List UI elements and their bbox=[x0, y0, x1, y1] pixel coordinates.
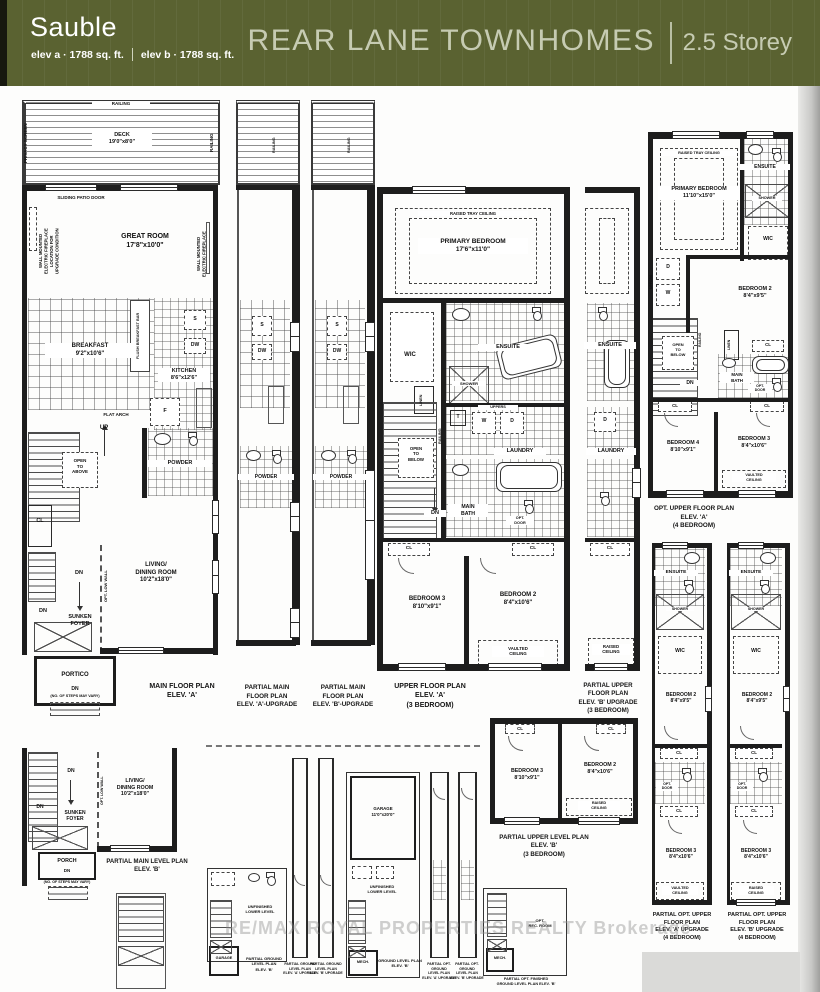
open-to-above-label: OPEN TO ABOVE bbox=[63, 458, 97, 475]
powder-label: POWDER bbox=[238, 474, 294, 480]
strip4b-caption: PARTIAL OPT. UPPER FLOOR PLAN ELEV. 'B' … bbox=[723, 912, 791, 942]
railing-label: RAILING bbox=[92, 101, 150, 107]
closet-label: CL bbox=[660, 750, 698, 756]
porch bbox=[38, 852, 96, 880]
deck bbox=[311, 100, 375, 185]
fixture-box bbox=[376, 866, 394, 879]
dn-arrow bbox=[434, 488, 435, 508]
primary-bedroom-label: PRIMARY BEDROOM 11'10"x15'0" bbox=[658, 186, 740, 200]
fixture-box bbox=[352, 866, 372, 879]
dn-label: DN bbox=[60, 768, 82, 774]
window bbox=[746, 131, 774, 139]
closet bbox=[28, 505, 52, 547]
ensuite-label: ENSUITE bbox=[478, 344, 538, 351]
tray-label: RAISED TRAY CEILING bbox=[661, 151, 737, 156]
fixture-box bbox=[211, 872, 235, 886]
door-arc bbox=[480, 558, 496, 574]
portico-dn-label: DN bbox=[64, 686, 86, 692]
wall bbox=[634, 187, 640, 671]
door-arc bbox=[664, 413, 678, 427]
watermark: RE/MAX ROYAL PROPERTIES REALTY Brokerage bbox=[225, 918, 605, 939]
sink-icon bbox=[722, 358, 736, 368]
wall bbox=[22, 748, 27, 886]
dishwasher-label: DW bbox=[327, 348, 347, 354]
wall-fireplace-label: WALL MOUNTED ELECTRIC FIREPLACE bbox=[196, 210, 207, 298]
wic-box bbox=[733, 636, 779, 674]
wall bbox=[652, 900, 712, 905]
sink-icon bbox=[760, 552, 776, 564]
sliding-door bbox=[45, 184, 97, 191]
open-to-below-label: OPEN TO BELOW bbox=[663, 342, 693, 357]
great-room-label: GREAT ROOM 17'8"x10'0" bbox=[90, 233, 200, 251]
closet-label: CL bbox=[735, 750, 773, 756]
ground3-caption: PARTIAL OPT. FINISHED GROUND LEVEL PLAN … bbox=[488, 977, 564, 987]
uppers-label: UPPERS bbox=[649, 260, 654, 304]
dn-label: DN bbox=[680, 380, 700, 386]
main-bath-label: MAIN BATH bbox=[720, 372, 754, 383]
toilet-icon bbox=[760, 580, 769, 593]
opt-door-label: OPT. DOOR bbox=[748, 384, 772, 393]
window bbox=[212, 500, 219, 534]
ensuite-label: ENSUITE bbox=[584, 342, 636, 349]
sink-label: S bbox=[252, 322, 272, 328]
portico-label: PORTICO bbox=[44, 672, 106, 680]
upperlvl-b-caption: PARTIAL UPPER LEVEL PLAN ELEV. 'B' (3 BE… bbox=[494, 834, 594, 859]
dryer-label: D bbox=[500, 418, 524, 424]
fridge-label: F bbox=[150, 408, 180, 415]
sliding-patio-door-label: SLIDING PATIO DOOR bbox=[38, 195, 124, 201]
wall bbox=[652, 398, 792, 402]
window bbox=[488, 663, 542, 671]
wall bbox=[740, 139, 744, 261]
uppers-label: UPPERS bbox=[478, 405, 518, 410]
counter bbox=[196, 388, 212, 428]
ensuite-label: ENSUITE bbox=[654, 570, 698, 576]
wic-label: WIC bbox=[390, 352, 430, 360]
dn-arrow bbox=[70, 780, 71, 800]
powder-label: POWDER bbox=[313, 474, 369, 480]
bathtub-icon bbox=[496, 462, 562, 492]
door-arc bbox=[756, 413, 770, 427]
upper-b-caption: PARTIAL UPPER FLOOR PLAN ELEV. 'B' UPGRA… bbox=[572, 682, 644, 715]
wall bbox=[714, 412, 718, 492]
bedroom2-label: BEDROOM 2 8'4"x10'6" bbox=[478, 592, 558, 607]
bedroom3-label: BEDROOM 3 8'4"x10'6" bbox=[727, 848, 785, 861]
sink-label: S bbox=[327, 322, 347, 328]
window bbox=[365, 322, 375, 352]
wall bbox=[236, 640, 296, 646]
door-arc bbox=[398, 558, 414, 574]
window bbox=[632, 468, 641, 498]
shower-label: SHOWER bbox=[742, 607, 770, 611]
toilet-icon bbox=[600, 492, 609, 505]
bedroom4-label: BEDROOM 4 8'10"x9'1" bbox=[654, 440, 712, 453]
shower-icon bbox=[731, 594, 781, 630]
bath-floor bbox=[587, 459, 634, 537]
wall bbox=[292, 185, 300, 645]
laundry-label: LAUNDRY bbox=[586, 448, 636, 455]
sink-icon bbox=[748, 144, 763, 155]
vaulted-label: VAULTED CEILING bbox=[492, 646, 544, 657]
privacy-screen-label: PRIVACY SCREEN bbox=[23, 112, 29, 174]
washer-label: W bbox=[656, 290, 680, 296]
porch-label: PORCH bbox=[44, 858, 90, 865]
dishwasher-label: DW bbox=[252, 348, 272, 354]
wall bbox=[311, 640, 371, 646]
closet-label: CL bbox=[590, 546, 630, 552]
dn-label-2: DN bbox=[30, 804, 50, 810]
opt-door-label: OPT. DOOR bbox=[506, 516, 534, 525]
main-b-caption: PARTIAL MAIN LEVEL PLAN ELEV. 'B' bbox=[104, 858, 190, 874]
dn-label: DN bbox=[424, 510, 446, 517]
entry-steps bbox=[50, 702, 100, 716]
wall bbox=[655, 744, 707, 748]
flush-breakfast-bar-label: FLUSH BREAKFAST BAR bbox=[136, 304, 141, 368]
door-arc bbox=[664, 726, 678, 740]
railing-label: RAILING bbox=[347, 122, 352, 168]
steps-note: (NO. OF STEPS MAY VARY) bbox=[28, 694, 122, 699]
scan-margin-bottom bbox=[642, 952, 800, 992]
wall bbox=[730, 744, 782, 748]
wall bbox=[236, 185, 300, 190]
opt4a-caption: OPT. UPPER FLOOR PLAN ELEV. 'A' (4 BEDRO… bbox=[644, 505, 744, 531]
fireplace-upgrade-icon bbox=[29, 207, 37, 251]
opt-low-wall-label: OPT. LOW WALL bbox=[103, 555, 108, 617]
wall bbox=[558, 722, 562, 820]
closet-label: CL bbox=[505, 726, 535, 732]
window bbox=[118, 647, 164, 654]
closet-label: CL bbox=[28, 518, 52, 525]
shower-icon bbox=[656, 594, 704, 630]
bedroom2-label: BEDROOM 2 8'4"x9'5" bbox=[654, 692, 708, 705]
toilet-icon bbox=[682, 768, 691, 781]
kitchen-label: KITCHEN 8'6"x12'6" bbox=[158, 368, 210, 382]
window bbox=[290, 608, 300, 638]
model-name: Sauble bbox=[30, 12, 117, 43]
storey-label: 2.5 Storey bbox=[683, 29, 792, 57]
up-label: UP bbox=[92, 425, 116, 433]
door-arc bbox=[743, 820, 757, 834]
washer-label: W bbox=[472, 418, 496, 424]
vaulted-label: VAULTED CEILING bbox=[732, 473, 776, 482]
up-arrow bbox=[104, 430, 105, 456]
window bbox=[578, 817, 620, 825]
steps bbox=[210, 940, 232, 954]
mech-label: MECH. bbox=[487, 956, 513, 961]
sunken-foyer-label: SUNKEN FOYER bbox=[56, 614, 104, 628]
opt-door-label: OPT. DOOR bbox=[656, 782, 678, 791]
dryer-label: D bbox=[594, 417, 616, 423]
opt-low-wall-line bbox=[100, 545, 102, 653]
closet-label-2: CL bbox=[596, 726, 626, 732]
counter bbox=[268, 386, 284, 424]
wall bbox=[22, 185, 27, 655]
cut-line bbox=[312, 190, 314, 645]
sunken-foyer-label: SUNKEN FOYER bbox=[54, 810, 96, 823]
ogstrip-b-caption: PARTIAL OPT. GROUND LEVEL PLAN ELEV. 'B'… bbox=[448, 962, 486, 981]
primary-bedroom-label: PRIMARY BEDROOM 17'6"x11'0" bbox=[418, 238, 528, 254]
window bbox=[290, 322, 300, 352]
door-arc bbox=[508, 736, 523, 751]
closet-label-2: CL bbox=[660, 808, 698, 814]
window bbox=[504, 817, 540, 825]
ceiling-label: VAULTED CEILING bbox=[662, 886, 698, 895]
window bbox=[110, 845, 150, 852]
wall bbox=[490, 718, 495, 824]
open-to-below-label: OPEN TO BELOW bbox=[399, 446, 433, 462]
window bbox=[736, 899, 776, 906]
counter bbox=[343, 386, 359, 424]
entry-steps bbox=[48, 886, 88, 900]
sink-icon bbox=[248, 873, 260, 882]
strip-b-caption: PARTIAL MAIN FLOOR PLAN ELEV. 'B'-UPGRAD… bbox=[304, 684, 382, 710]
wall bbox=[686, 255, 690, 333]
steps bbox=[487, 939, 507, 952]
wall bbox=[633, 718, 638, 824]
laundry-label: LAUNDRY bbox=[494, 448, 546, 455]
breakfast-label: BREAKFAST 9'2"x10'6" bbox=[45, 343, 135, 358]
ground1-caption: PARTIAL GROUND LEVEL PLAN ELEV. 'B' bbox=[240, 956, 288, 972]
sink-label: S bbox=[184, 316, 206, 322]
linen-label: LINEN bbox=[727, 332, 731, 358]
bathtub-icon bbox=[752, 356, 789, 374]
upper-a-caption: UPPER FLOOR PLAN ELEV. 'A' (3 BEDROOM) bbox=[382, 682, 478, 710]
series-title: REAR LANE TOWNHOMES bbox=[248, 24, 655, 58]
window bbox=[398, 663, 446, 671]
elev-b-sqft: elev b · 1788 sq. ft. bbox=[141, 49, 234, 61]
window bbox=[120, 184, 178, 191]
toilet-icon bbox=[598, 307, 607, 320]
bedroom2-label: BEDROOM 2 8'4"x9'5" bbox=[728, 286, 782, 300]
shower-label: SHOWER bbox=[666, 607, 694, 611]
ensuite-sink-icon bbox=[452, 308, 470, 321]
steps-note: (NO. OF STEPS MAY VARY) bbox=[26, 880, 108, 884]
window bbox=[212, 560, 219, 594]
shower-label: SHOWER bbox=[752, 196, 782, 201]
deck-label: DECK 19'0"x8'0" bbox=[92, 132, 152, 146]
closet-label-2: CL bbox=[750, 403, 784, 409]
spec-divider bbox=[132, 48, 133, 61]
powder-toilet-icon bbox=[347, 450, 356, 463]
raised-label: RAISED CEILING bbox=[592, 644, 630, 655]
window bbox=[672, 131, 720, 139]
railing-right-label: RAILING bbox=[209, 118, 215, 168]
wall bbox=[377, 187, 570, 194]
closet-label-2: CL bbox=[735, 808, 773, 814]
bedroom2-label: BEDROOM 2 8'4"x10'6" bbox=[570, 762, 630, 775]
closet-label: CL bbox=[752, 342, 784, 348]
powder-toilet-icon bbox=[272, 450, 281, 463]
tray-ceiling-partial bbox=[585, 208, 629, 294]
railing-label: RAILING bbox=[272, 122, 277, 168]
shower-label: SHOWER bbox=[452, 381, 486, 386]
wic-label: WIC bbox=[742, 648, 770, 654]
title-divider bbox=[670, 22, 672, 64]
wic-shelf bbox=[390, 312, 434, 382]
powder-sink-icon bbox=[154, 433, 171, 445]
linen-label: LINEN bbox=[419, 388, 424, 412]
foyer-stairs bbox=[28, 552, 56, 602]
wall bbox=[383, 298, 566, 303]
steps bbox=[348, 946, 366, 958]
elev-a-sqft: elev a · 1788 sq. ft. bbox=[31, 49, 124, 61]
t-label: T bbox=[450, 414, 466, 420]
main-a-caption: MAIN FLOOR PLAN ELEV. 'A' bbox=[132, 682, 232, 701]
wic-box bbox=[658, 636, 702, 674]
railing-label: RAILING bbox=[698, 322, 703, 358]
wall bbox=[788, 132, 793, 498]
living-dining-label: LIVING/ DINING ROOM 10'2"x18'0" bbox=[102, 778, 168, 798]
unfinished-label: UNFINISHED LOWER LEVEL bbox=[352, 884, 412, 894]
porch-dn-label: DN bbox=[56, 868, 78, 874]
living-dining-label: LIVING/ DINING ROOM 10'2"x18'0" bbox=[112, 562, 200, 585]
closet-label-2: CL bbox=[512, 546, 554, 552]
page-edge bbox=[0, 0, 7, 86]
window bbox=[738, 490, 776, 498]
window bbox=[738, 542, 764, 549]
window bbox=[290, 502, 300, 532]
dryer-label: D bbox=[656, 264, 680, 270]
toilet-icon bbox=[758, 768, 767, 781]
ensuite-toilet-icon bbox=[532, 307, 541, 320]
flat-arch-label: FLAT ARCH bbox=[92, 412, 140, 418]
bedroom3-label: BEDROOM 3 8'10"x9'1" bbox=[389, 596, 465, 611]
wall bbox=[585, 538, 635, 542]
dn-arrow bbox=[79, 582, 80, 606]
wall bbox=[172, 748, 177, 852]
sink-icon bbox=[684, 552, 700, 564]
dishwasher-label: DW bbox=[184, 342, 206, 348]
opt-door-label: OPT. DOOR bbox=[731, 782, 753, 791]
bath-sink-icon bbox=[452, 464, 469, 476]
bedroom3-label: BEDROOM 3 8'4"x10'6" bbox=[652, 848, 710, 861]
door-arc bbox=[584, 736, 599, 751]
deck bbox=[236, 100, 300, 185]
railing-label: RAILING bbox=[438, 415, 443, 457]
window bbox=[594, 663, 628, 671]
foyer-steps bbox=[32, 826, 88, 850]
wall bbox=[441, 303, 446, 403]
powder-label: POWDER bbox=[148, 460, 212, 467]
wall bbox=[785, 543, 790, 903]
unfinished-label: UNFINISHED LOWER LEVEL bbox=[236, 904, 284, 914]
wall bbox=[648, 132, 653, 498]
scan-margin-right bbox=[798, 86, 820, 992]
ground2-caption: GROUND LEVEL PLAN ELEV. 'B' bbox=[378, 958, 422, 969]
tray-label: RAISED TRAY CEILING bbox=[418, 211, 528, 216]
garage-label: GARAGE 11'0"x20'0" bbox=[355, 806, 411, 817]
main-bath-label: MAIN BATH bbox=[448, 504, 488, 517]
wall bbox=[377, 187, 383, 671]
wall bbox=[585, 187, 640, 193]
wic-label: WIC bbox=[666, 648, 694, 654]
closet-label: CL bbox=[658, 403, 692, 409]
wall bbox=[564, 187, 570, 671]
closet-label: CL bbox=[388, 546, 430, 552]
window-wall bbox=[365, 470, 375, 580]
bedroom3-label: BEDROOM 3 8'10"x9'1" bbox=[498, 768, 556, 781]
garage bbox=[350, 776, 416, 860]
window bbox=[662, 542, 688, 549]
stairs bbox=[118, 896, 164, 942]
window bbox=[412, 186, 466, 194]
wall bbox=[311, 185, 375, 190]
door-arc bbox=[740, 726, 754, 740]
mech-label: MECH. bbox=[349, 960, 377, 965]
section-divider bbox=[206, 745, 480, 747]
shower-icon bbox=[745, 184, 789, 218]
bath-toilet-icon bbox=[524, 500, 533, 513]
strip-a-caption: PARTIAL MAIN FLOOR PLAN ELEV. 'A'-UPGRAD… bbox=[228, 684, 306, 710]
window bbox=[666, 490, 704, 498]
dn-label-2: DN bbox=[32, 608, 54, 615]
wic-label: WIC bbox=[752, 236, 784, 242]
bedroom3-label: BEDROOM 3 8'4"x10'6" bbox=[722, 436, 786, 449]
toilet-icon bbox=[684, 580, 693, 593]
raised-label: RAISED CEILING bbox=[578, 801, 620, 810]
wall bbox=[142, 428, 147, 498]
door-arc bbox=[668, 820, 682, 834]
ceiling-label: RAISED CEILING bbox=[738, 886, 774, 895]
wall bbox=[490, 718, 638, 724]
toilet-icon bbox=[266, 872, 275, 885]
gstrip-b-caption: PARTIAL GROUND LEVEL PLAN ELEV. 'B' UPGR… bbox=[308, 962, 344, 976]
cut-line bbox=[237, 190, 239, 645]
window bbox=[783, 686, 790, 712]
opt-low-wall-line bbox=[97, 752, 99, 848]
garage-label: GARAGE bbox=[210, 956, 238, 961]
title-banner: Sauble elev a · 1788 sq. ft. elev b · 17… bbox=[0, 0, 820, 86]
ensuite-label: ENSUITE bbox=[740, 164, 790, 170]
fireplace-upgrade-note: WALL MOUNTED ELECTRIC FIREPLACE LOCATION… bbox=[38, 205, 60, 297]
powder-sink-icon bbox=[246, 450, 261, 461]
ensuite-label: ENSUITE bbox=[729, 570, 773, 576]
toilet-icon bbox=[772, 378, 781, 391]
dn-label: DN bbox=[68, 570, 90, 577]
wall bbox=[383, 538, 566, 542]
bedroom2-label: BEDROOM 2 8'4"x9'5" bbox=[730, 692, 784, 705]
landing bbox=[118, 946, 164, 966]
wall bbox=[686, 255, 793, 259]
elevation-specs: elev a · 1788 sq. ft. elev b · 1788 sq. … bbox=[31, 48, 234, 61]
toilet-icon bbox=[772, 148, 781, 161]
powder-sink-icon bbox=[321, 450, 336, 461]
powder-toilet-icon bbox=[188, 432, 197, 445]
